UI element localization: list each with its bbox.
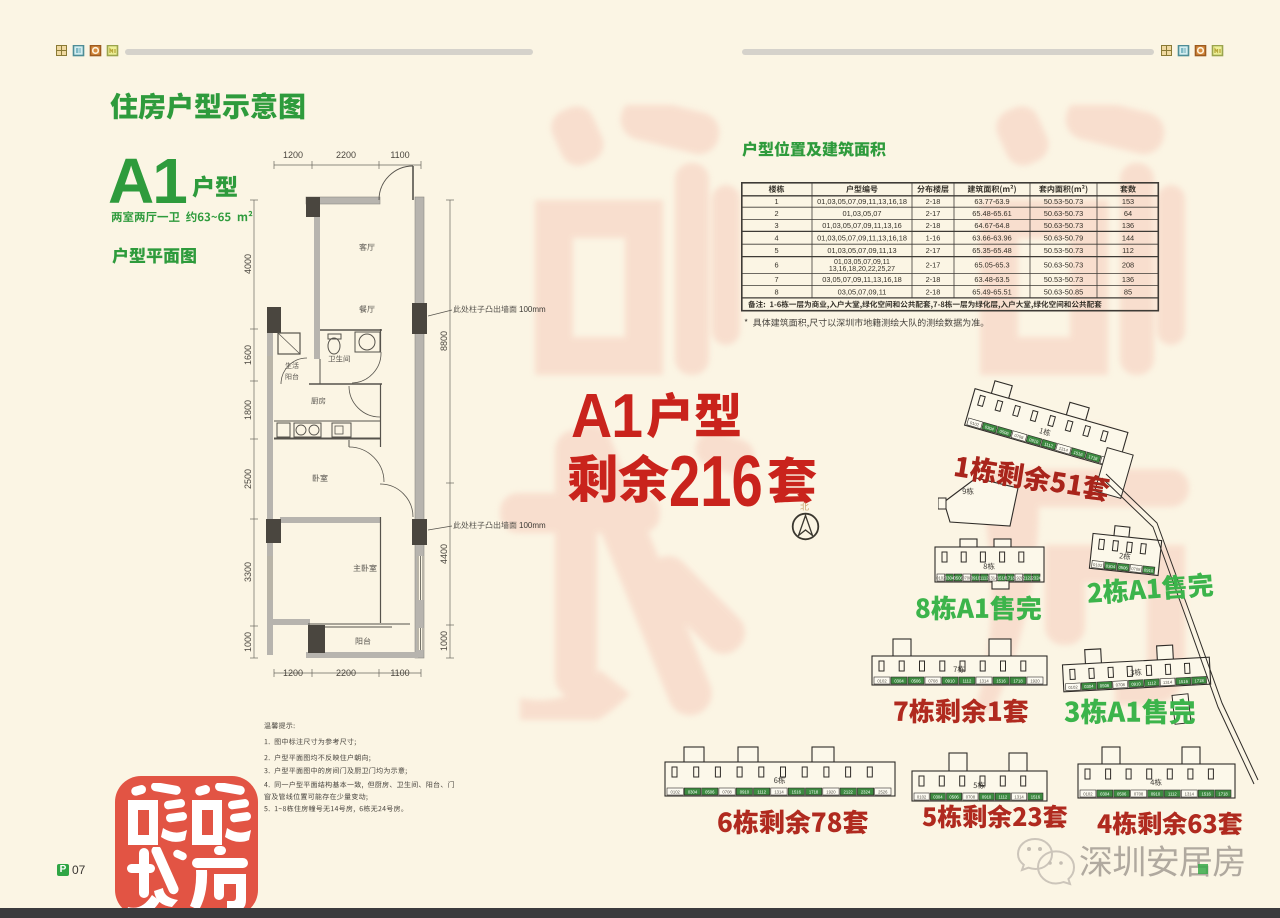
svg-text:2-18: 2-18 [926, 221, 941, 230]
svg-text:1314: 1314 [774, 789, 784, 794]
svg-text:50.63-50.73: 50.63-50.73 [1044, 209, 1083, 218]
svg-text:0910: 0910 [945, 678, 955, 683]
svg-text:0304: 0304 [688, 789, 698, 794]
svg-text:1718: 1718 [1218, 791, 1228, 796]
svg-text:1000: 1000 [439, 631, 449, 651]
svg-text:01,03,05,07,09,11,13: 01,03,05,07,09,11,13 [827, 246, 896, 255]
svg-text:2122: 2122 [844, 789, 854, 794]
svg-text:1516: 1516 [792, 789, 802, 794]
svg-text:50.63-50.73: 50.63-50.73 [1044, 221, 1083, 230]
svg-text:0506: 0506 [911, 678, 921, 683]
svg-text:63.48-63.5: 63.48-63.5 [974, 275, 1009, 284]
svg-text:2500: 2500 [243, 469, 253, 489]
svg-text:0708: 0708 [1134, 791, 1144, 796]
svg-text:5: 5 [774, 246, 778, 255]
svg-text:1112: 1112 [963, 678, 972, 683]
svg-text:0910: 0910 [982, 794, 992, 799]
svg-text:2324: 2324 [861, 789, 871, 794]
svg-text:85: 85 [1124, 287, 1132, 296]
svg-text:50.63-50.73: 50.63-50.73 [1044, 261, 1083, 270]
svg-text:1200: 1200 [283, 668, 303, 678]
svg-text:112: 112 [1122, 246, 1134, 255]
svg-text:1112: 1112 [999, 794, 1008, 799]
svg-text:7: 7 [774, 275, 778, 284]
svg-text:63.66-63.96: 63.66-63.96 [972, 233, 1011, 242]
svg-text:0910: 0910 [740, 789, 750, 794]
svg-text:4: 4 [774, 233, 778, 242]
svg-text:2324: 2324 [1032, 575, 1042, 580]
svg-text:0102: 0102 [1068, 684, 1078, 690]
svg-text:0910: 0910 [1151, 791, 1161, 796]
svg-text:0506: 0506 [705, 789, 715, 794]
svg-text:4400: 4400 [439, 544, 449, 564]
svg-text:2526: 2526 [878, 789, 888, 794]
svg-text:1800: 1800 [243, 400, 253, 420]
svg-text:2-17: 2-17 [926, 246, 941, 255]
svg-text:6: 6 [774, 261, 778, 270]
svg-text:1-16: 1-16 [926, 233, 941, 242]
svg-text:0102: 0102 [877, 678, 887, 683]
svg-text:1100: 1100 [390, 150, 409, 160]
svg-text:0304: 0304 [1084, 684, 1094, 690]
svg-text:1516: 1516 [1031, 794, 1041, 799]
svg-text:4000: 4000 [243, 254, 253, 274]
svg-text:8800: 8800 [439, 331, 449, 351]
svg-text:13,16,18,20,22,25,27: 13,16,18,20,22,25,27 [829, 266, 895, 273]
svg-text:65.49-65.51: 65.49-65.51 [972, 287, 1011, 296]
svg-text:0304: 0304 [933, 794, 943, 799]
svg-text:2-17: 2-17 [926, 261, 941, 270]
svg-text:2-18: 2-18 [926, 275, 941, 284]
svg-text:2200: 2200 [336, 668, 356, 678]
svg-text:2: 2 [774, 209, 778, 218]
svg-text:01,03,05,07,09,11,13,16,18: 01,03,05,07,09,11,13,16,18 [817, 233, 907, 242]
svg-text:0708: 0708 [966, 794, 976, 799]
svg-text:1: 1 [774, 197, 778, 206]
svg-text:50.63-50.79: 50.63-50.79 [1044, 233, 1083, 242]
svg-text:1516: 1516 [1202, 791, 1212, 796]
svg-text:65.05-65.3: 65.05-65.3 [974, 261, 1009, 270]
svg-text:50.53-50.73: 50.53-50.73 [1044, 197, 1083, 206]
svg-text:1600: 1600 [243, 345, 253, 365]
svg-text:1112: 1112 [757, 789, 766, 794]
svg-text:2-17: 2-17 [926, 209, 941, 218]
svg-text:3: 3 [774, 221, 778, 230]
svg-text:0506: 0506 [949, 794, 959, 799]
svg-text:144: 144 [1122, 233, 1134, 242]
svg-text:1718: 1718 [1013, 678, 1023, 683]
svg-text:153: 153 [1122, 197, 1134, 206]
svg-text:65.35-65.48: 65.35-65.48 [972, 246, 1011, 255]
svg-text:01,03,05,07,09,11,13,16,18: 01,03,05,07,09,11,13,16,18 [817, 197, 907, 206]
svg-text:0102: 0102 [1083, 791, 1093, 796]
svg-text:1100: 1100 [390, 668, 409, 678]
svg-text:1920: 1920 [1030, 678, 1040, 683]
svg-text:208: 208 [1122, 261, 1134, 270]
svg-text:50.53-50.73: 50.53-50.73 [1044, 246, 1083, 255]
svg-text:03,05,07,09,11: 03,05,07,09,11 [838, 287, 887, 296]
svg-text:1112: 1112 [1168, 791, 1177, 796]
svg-text:8: 8 [774, 287, 778, 296]
svg-text:0304: 0304 [894, 678, 904, 683]
svg-text:01,03,05,07,09,11: 01,03,05,07,09,11 [834, 259, 890, 266]
svg-text:64.67-64.8: 64.67-64.8 [974, 221, 1009, 230]
svg-text:136: 136 [1122, 275, 1134, 284]
svg-text:0708: 0708 [928, 678, 938, 683]
svg-text:1516: 1516 [996, 678, 1006, 683]
svg-text:2200: 2200 [336, 150, 356, 160]
svg-text:2-18: 2-18 [926, 287, 941, 296]
svg-text:1920: 1920 [826, 789, 836, 794]
svg-text:0708: 0708 [722, 789, 732, 794]
svg-text:3300: 3300 [243, 562, 253, 582]
svg-text:03,05,07,09,11,13,16,18: 03,05,07,09,11,13,16,18 [822, 275, 902, 284]
svg-text:1314: 1314 [1185, 791, 1195, 796]
svg-text:1200: 1200 [283, 150, 303, 160]
svg-text:01,03,05,07,09,11,13,16: 01,03,05,07,09,11,13,16 [822, 221, 902, 230]
svg-text:2-18: 2-18 [926, 197, 941, 206]
svg-text:1000: 1000 [243, 632, 253, 652]
svg-text:0304: 0304 [1100, 791, 1110, 796]
svg-text:65.48-65.61: 65.48-65.61 [972, 209, 1011, 218]
svg-text:01,03,05,07: 01,03,05,07 [842, 209, 881, 218]
svg-text:1718: 1718 [809, 789, 819, 794]
svg-text:136: 136 [1122, 221, 1134, 230]
svg-text:63.77-63.9: 63.77-63.9 [974, 197, 1009, 206]
svg-text:50.53-50.73: 50.53-50.73 [1044, 275, 1083, 284]
svg-text:50.63-50.85: 50.63-50.85 [1044, 287, 1083, 296]
svg-text:1314: 1314 [979, 678, 989, 683]
svg-text:0102: 0102 [917, 794, 927, 799]
svg-text:64: 64 [1124, 209, 1132, 218]
svg-text:0102: 0102 [671, 789, 681, 794]
svg-text:1314: 1314 [1014, 794, 1024, 799]
svg-text:0506: 0506 [1117, 791, 1127, 796]
